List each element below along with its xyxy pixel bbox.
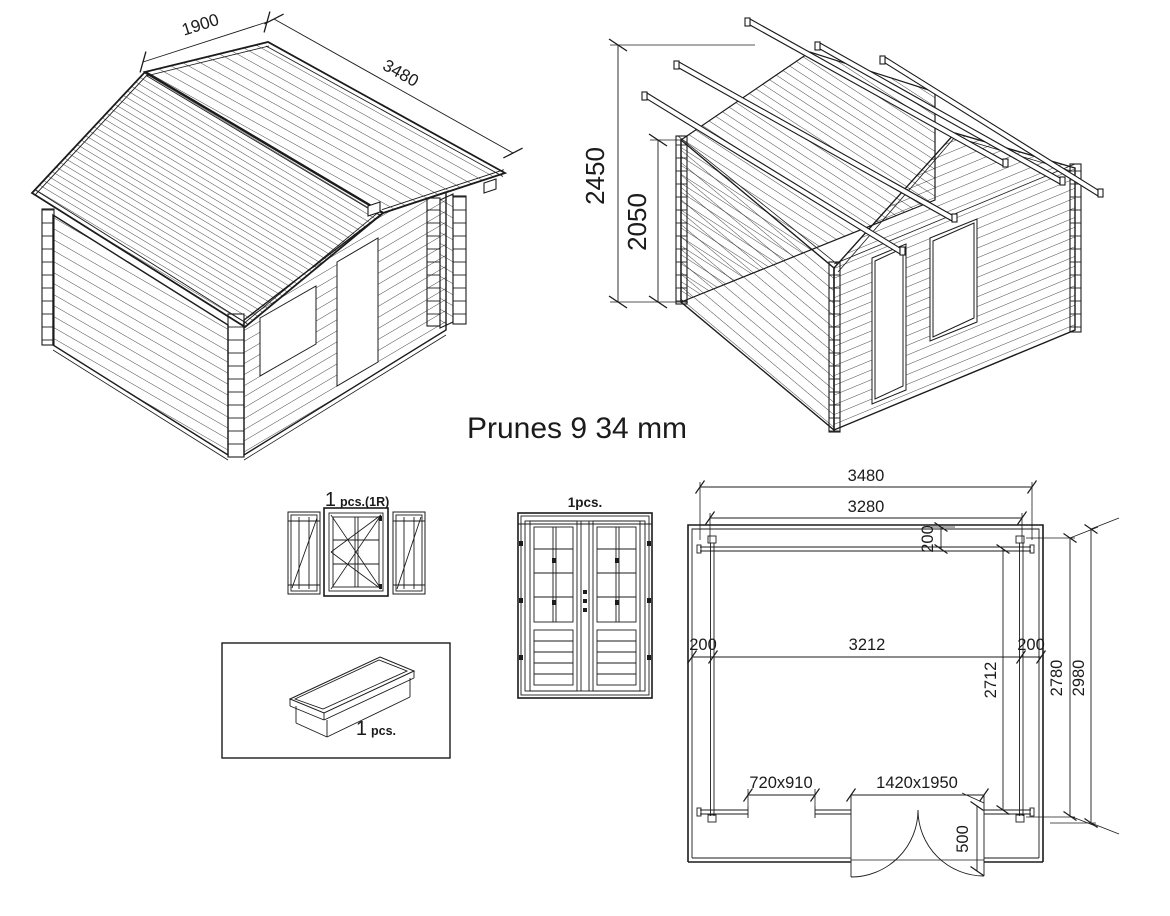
iso-view-frame: 2450 2050 bbox=[580, 18, 1103, 432]
door-leaf-right bbox=[593, 521, 640, 691]
dim-depth-mid: 2780 bbox=[1048, 660, 1066, 697]
dim-width-overall: 3480 bbox=[848, 467, 885, 485]
dim-inner-span: 3212 bbox=[849, 636, 886, 654]
dim-total-height-label: 2450 bbox=[580, 147, 610, 205]
dim-door-opening: 1420x1950 bbox=[876, 774, 958, 792]
window-shutter-left bbox=[288, 512, 320, 594]
dim-depth-overall: 2980 bbox=[1070, 660, 1088, 697]
technical-drawing-sheet: 1900 3480 bbox=[0, 0, 1170, 916]
dim-margin-left: 200 bbox=[689, 636, 717, 654]
window-qty-small: pcs.(1R) bbox=[340, 495, 389, 509]
door-qty-label: 1pcs. bbox=[568, 495, 603, 510]
dim-beam-offset: 200 bbox=[919, 525, 937, 553]
plan-dimensions: 3480 3280 200 200 3212 200 2712 bbox=[688, 467, 1120, 876]
plan-left-post bbox=[708, 536, 716, 822]
dim-door-side-offset: 500 bbox=[954, 825, 972, 853]
door-hinge-marks bbox=[519, 541, 523, 546]
corner-logs-right-a bbox=[427, 198, 440, 326]
cabin-right-wall-sliver bbox=[440, 194, 453, 328]
drawing-svg: 1900 3480 bbox=[0, 0, 1170, 916]
cabin-door-opening bbox=[337, 238, 378, 386]
dim-window-opening: 720x910 bbox=[749, 774, 812, 792]
iso-view-cabin: 1900 3480 bbox=[32, 8, 523, 460]
dim-wall-height-label: 2050 bbox=[622, 193, 652, 251]
plan-top-beam bbox=[697, 545, 1034, 553]
dim-depth-post: 2712 bbox=[982, 662, 1000, 699]
door-leaf-left bbox=[530, 521, 577, 691]
door-detail: 1pcs. bbox=[518, 495, 652, 698]
frame-post-back-left bbox=[676, 136, 687, 304]
door-handle-dots bbox=[583, 590, 587, 594]
window-detail: 1 pcs.(1R) bbox=[288, 489, 425, 596]
window-sash bbox=[324, 508, 388, 596]
dim-width-inner: 3280 bbox=[848, 498, 885, 516]
flower-box-qty-big: 1 bbox=[356, 718, 367, 740]
dim-roof-length-label: 3480 bbox=[380, 56, 422, 91]
plan-bottom-sill bbox=[697, 806, 1034, 818]
flower-box-detail: 1 pcs. bbox=[222, 643, 450, 758]
corner-logs-left bbox=[42, 209, 54, 345]
floor-plan: 3480 3280 200 200 3212 200 2712 bbox=[688, 467, 1120, 877]
corner-logs-front bbox=[228, 314, 244, 457]
flower-box-qty-small: pcs. bbox=[371, 724, 396, 738]
window-shutter-right bbox=[393, 512, 425, 594]
plan-right-post bbox=[1016, 536, 1024, 822]
frame-post-right bbox=[1070, 164, 1081, 332]
corner-logs-right-b bbox=[453, 196, 466, 324]
page-title: Prunes 9 34 mm bbox=[467, 412, 687, 445]
dim-margin-right: 200 bbox=[1017, 636, 1045, 654]
dim-roof-slope-label: 1900 bbox=[179, 10, 221, 40]
frame-post-front bbox=[829, 262, 840, 432]
